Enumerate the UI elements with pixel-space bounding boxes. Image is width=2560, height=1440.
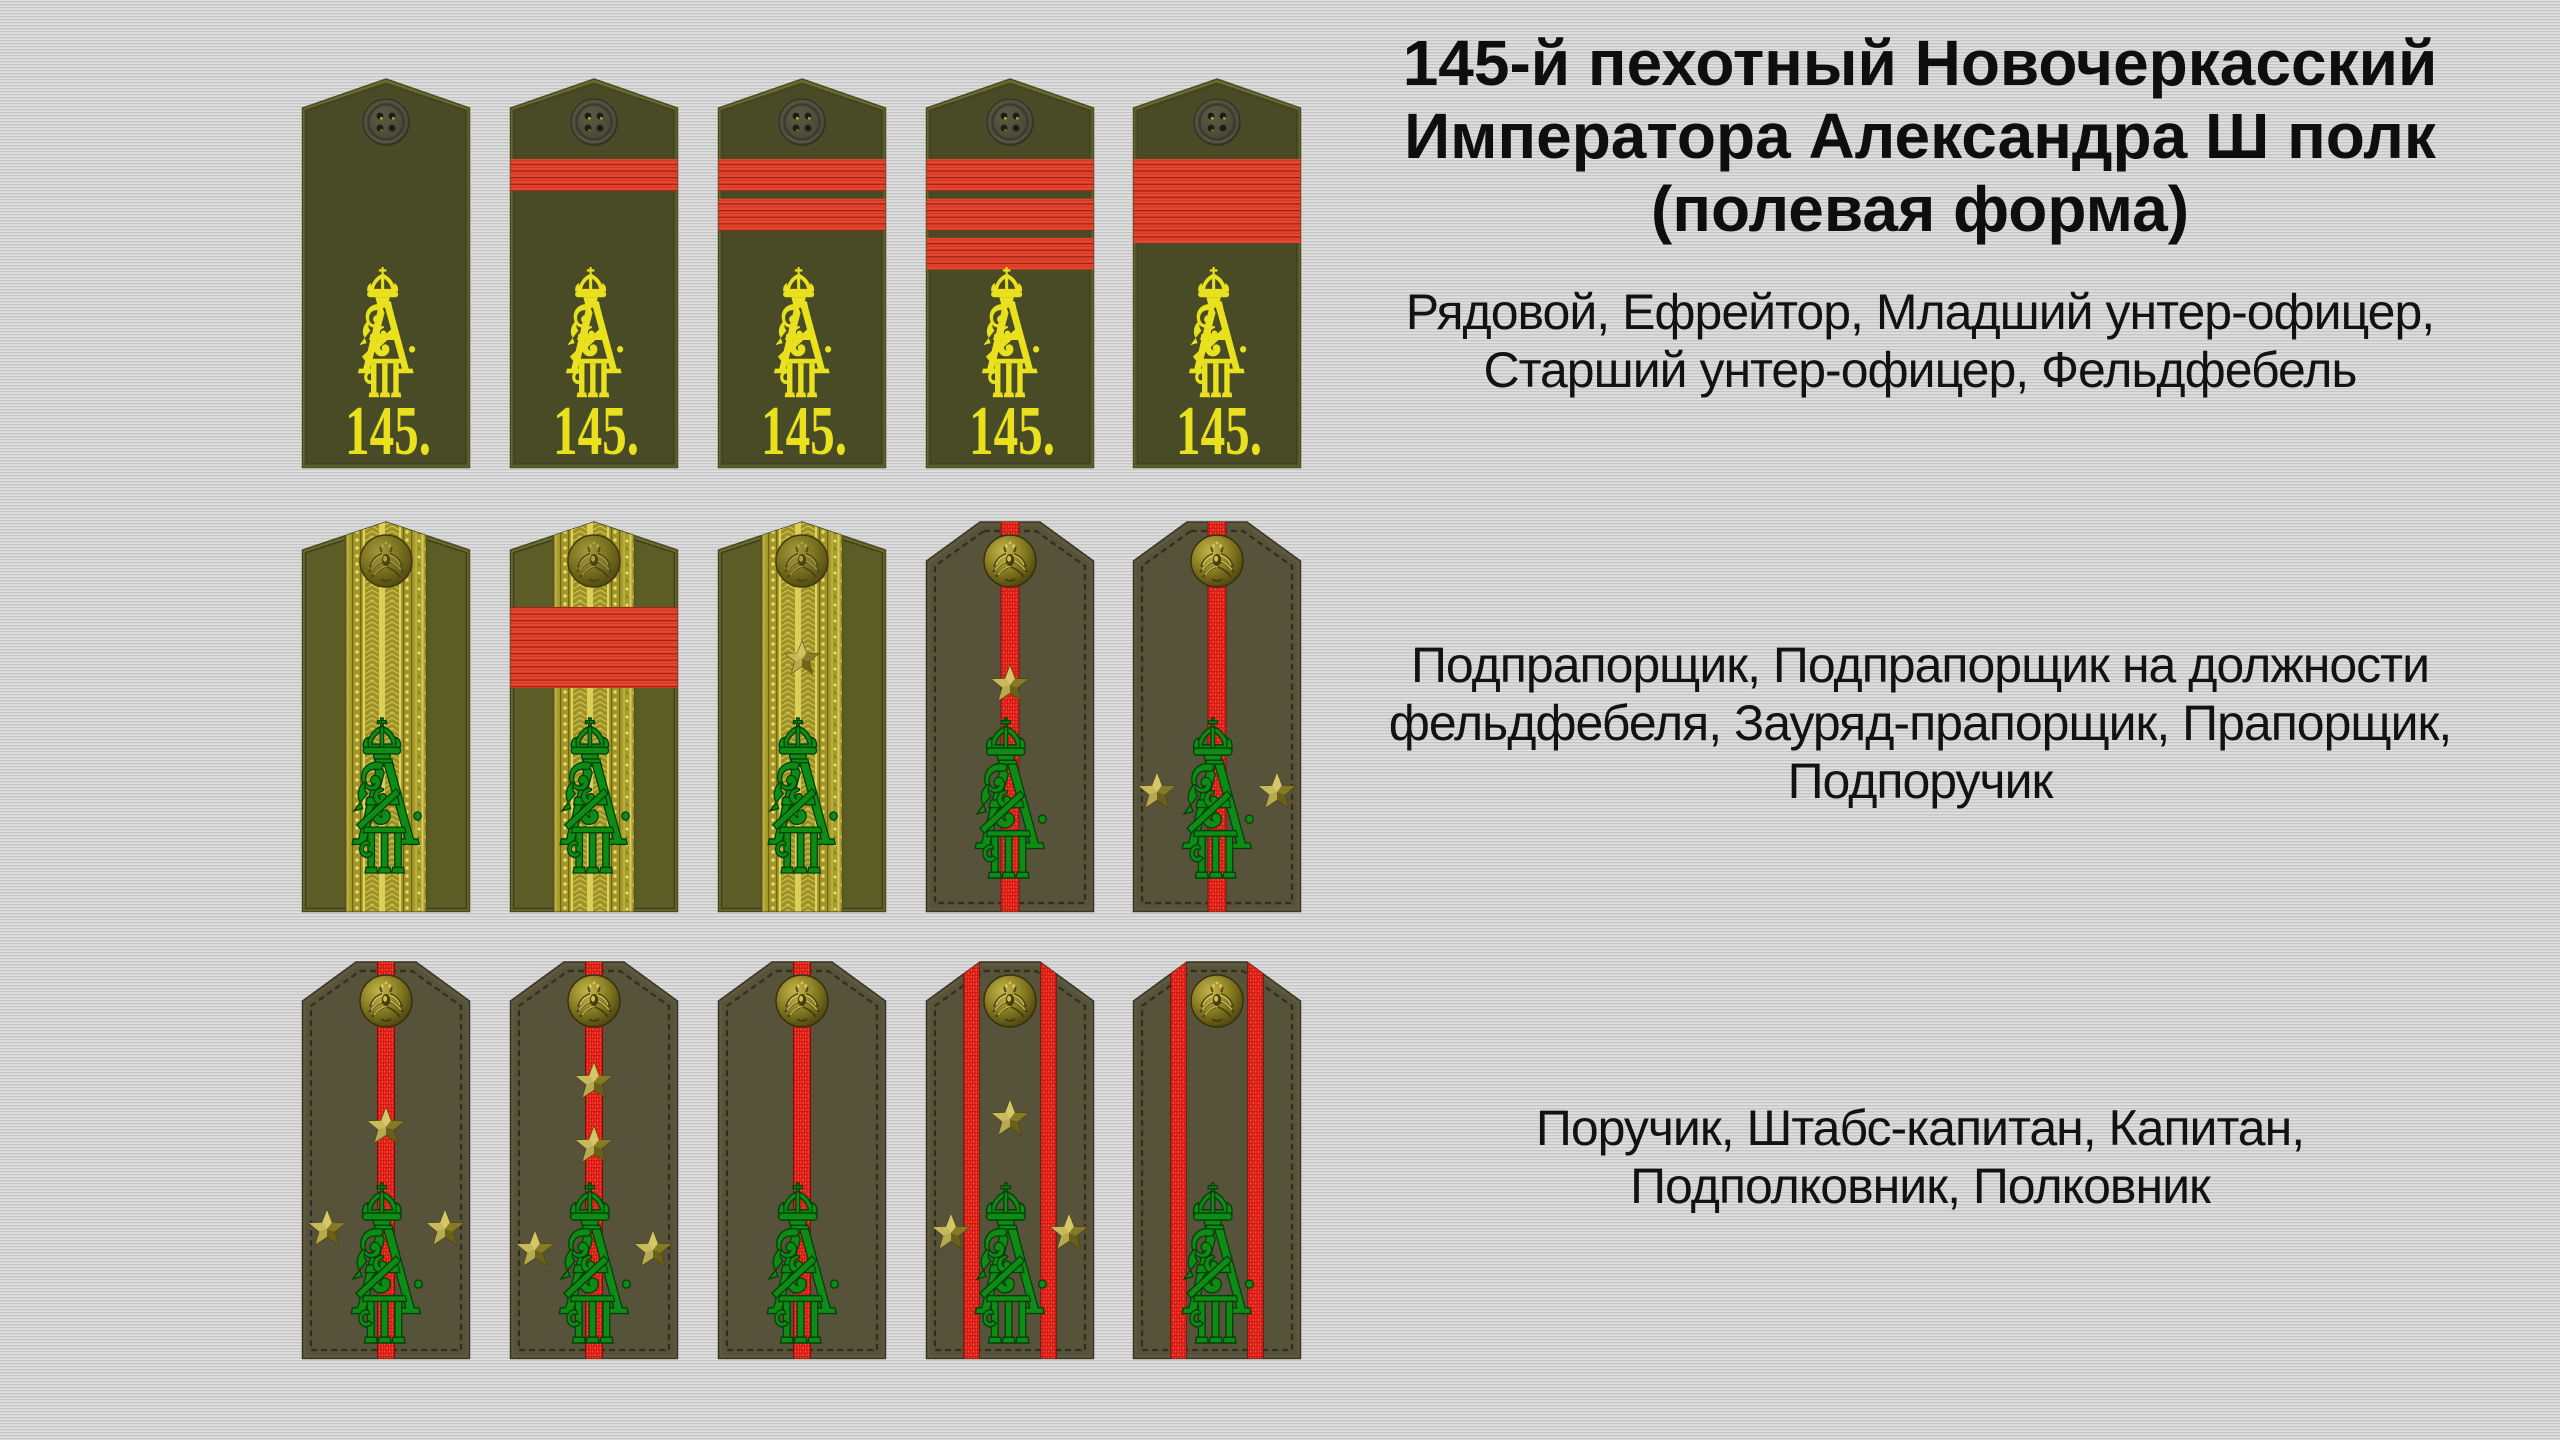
svg-text:145.: 145. — [1176, 393, 1262, 470]
svg-text:145.: 145. — [345, 393, 431, 470]
svg-text:145.: 145. — [969, 393, 1055, 470]
svg-text:145.: 145. — [761, 393, 847, 470]
svg-text:145.: 145. — [553, 393, 639, 470]
